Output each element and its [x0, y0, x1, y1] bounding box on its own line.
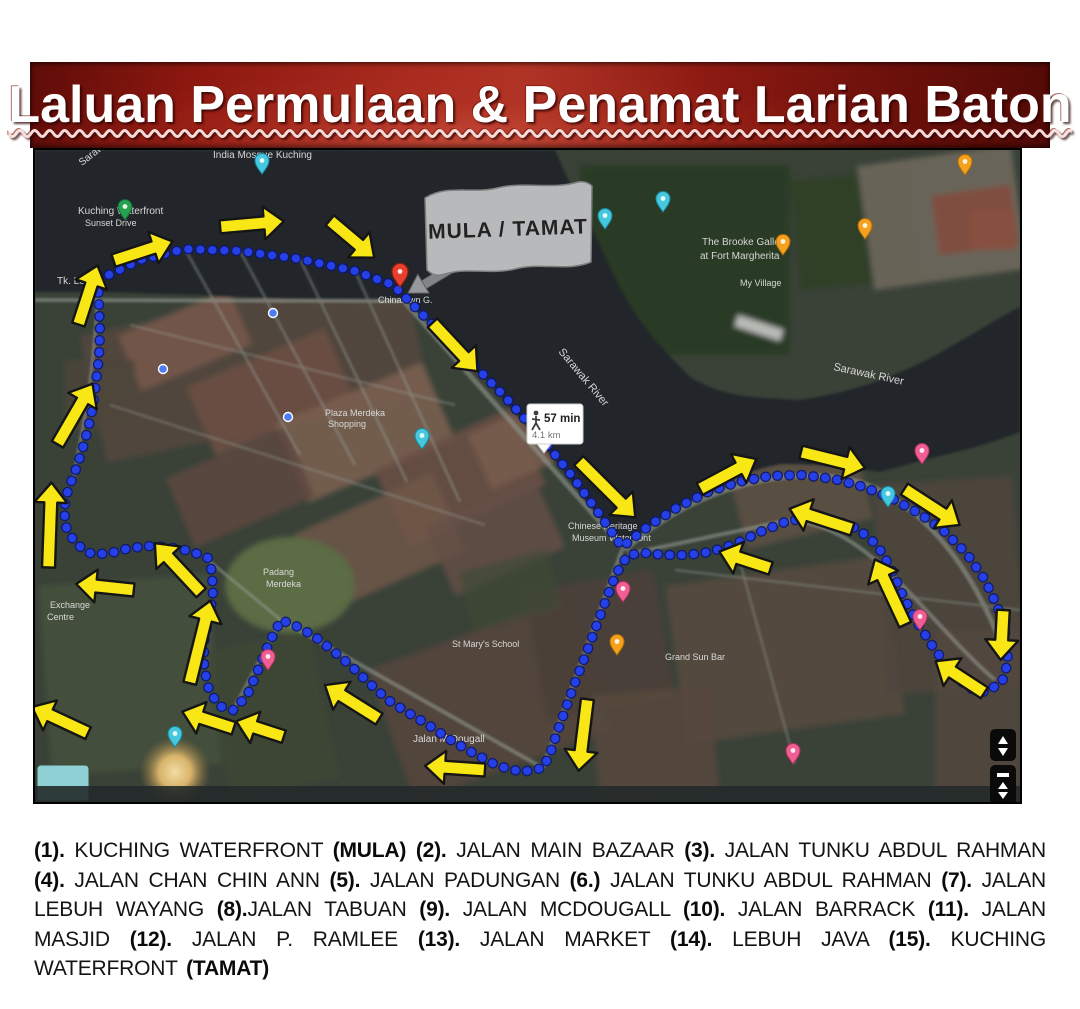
legend-checkpoint-number: (5).: [330, 869, 361, 892]
legend-checkpoint-number: (3).: [684, 839, 715, 862]
map-label: Merdeka: [266, 579, 301, 589]
legend-street-name: JALAN MARKET: [460, 928, 670, 951]
legend-street-name: JALAN P. RAMLEE: [172, 928, 418, 951]
legend-checkpoint-number: (15).: [888, 928, 930, 951]
legend-checkpoint-number: (6.): [570, 869, 601, 892]
legend-checkpoint-number: (4).: [34, 869, 65, 892]
legend-checkpoint-number: (7).: [941, 869, 972, 892]
title-banner: Laluan Permulaan & Penamat Larian Baton: [30, 62, 1050, 148]
flyer-page: Laluan Permulaan & Penamat Larian Baton: [0, 0, 1080, 1009]
route-legend: (1). KUCHING WATERFRONT (MULA) (2). JALA…: [34, 836, 1046, 984]
legend-street-name: JALAN CHAN CHIN ANN: [65, 869, 330, 892]
legend-street-name: JALAN TUNKU ABDUL RAHMAN: [715, 839, 1046, 862]
legend-checkpoint-number: (12).: [130, 928, 172, 951]
legend-checkpoint-number: (11).: [928, 898, 969, 921]
map-label: My Village: [740, 278, 781, 288]
map-label: Exchange: [50, 600, 90, 610]
zoom-bar-icon[interactable]: [997, 773, 1009, 777]
map-label: Sunset Drive: [85, 218, 137, 228]
map-canvas: SarawakIndia Mosque KuchingKuching Water…: [35, 150, 1020, 802]
legend-checkpoint-number: (1).: [34, 839, 65, 862]
map-label: Centre: [47, 612, 74, 622]
legend-street-name: LEBUH JAVA: [712, 928, 888, 951]
route-distance: 4.1 km: [532, 430, 561, 441]
map-label: at Fort Margherita: [700, 251, 780, 262]
map-label: Padang: [263, 567, 294, 577]
legend-checkpoint-number: (10).: [683, 898, 725, 921]
route-duration: 57 min: [544, 413, 580, 425]
map-label: St Mary's School: [452, 639, 519, 649]
legend-street-name: JALAN TABUAN: [247, 898, 419, 921]
legend-checkpoint-number: (14).: [670, 928, 712, 951]
map-control-buttons[interactable]: [990, 729, 1016, 802]
map-label: Shopping: [328, 419, 366, 429]
legend-street-name: JALAN BARRACK: [725, 898, 928, 921]
legend-checkpoint-number: (MULA): [333, 839, 406, 862]
poi-pin-blue: [284, 413, 293, 422]
legend-checkpoint-number: (2).: [416, 839, 447, 862]
poi-pin-blue: [159, 365, 168, 374]
legend-street-name: [406, 839, 416, 862]
legend-street-name: JALAN PADUNGAN: [360, 869, 569, 892]
route-map: SarawakIndia Mosque KuchingKuching Water…: [33, 148, 1022, 804]
legend-checkpoint-number: (8).: [217, 898, 248, 921]
legend-street-name: JALAN MAIN BAZAAR: [447, 839, 685, 862]
legend-checkpoint-number: (9).: [419, 898, 450, 921]
poi-pin-blue: [269, 309, 278, 318]
legend-street-name: JALAN MCDOUGALL: [450, 898, 683, 921]
legend-street-name: KUCHING WATERFRONT: [65, 839, 333, 862]
map-bottom-shade: [35, 786, 1020, 802]
page-title: Laluan Permulaan & Penamat Larian Baton: [8, 75, 1071, 135]
map-label: Plaza Merdeka: [325, 408, 385, 418]
legend-checkpoint-number: (TAMAT): [186, 957, 269, 980]
legend-street-name: JALAN TUNKU ABDUL RAHMAN: [600, 869, 941, 892]
map-label: Grand Sun Bar: [665, 652, 725, 662]
map-label: The Brooke Gallery: [702, 237, 788, 248]
legend-checkpoint-number: (13).: [418, 928, 460, 951]
